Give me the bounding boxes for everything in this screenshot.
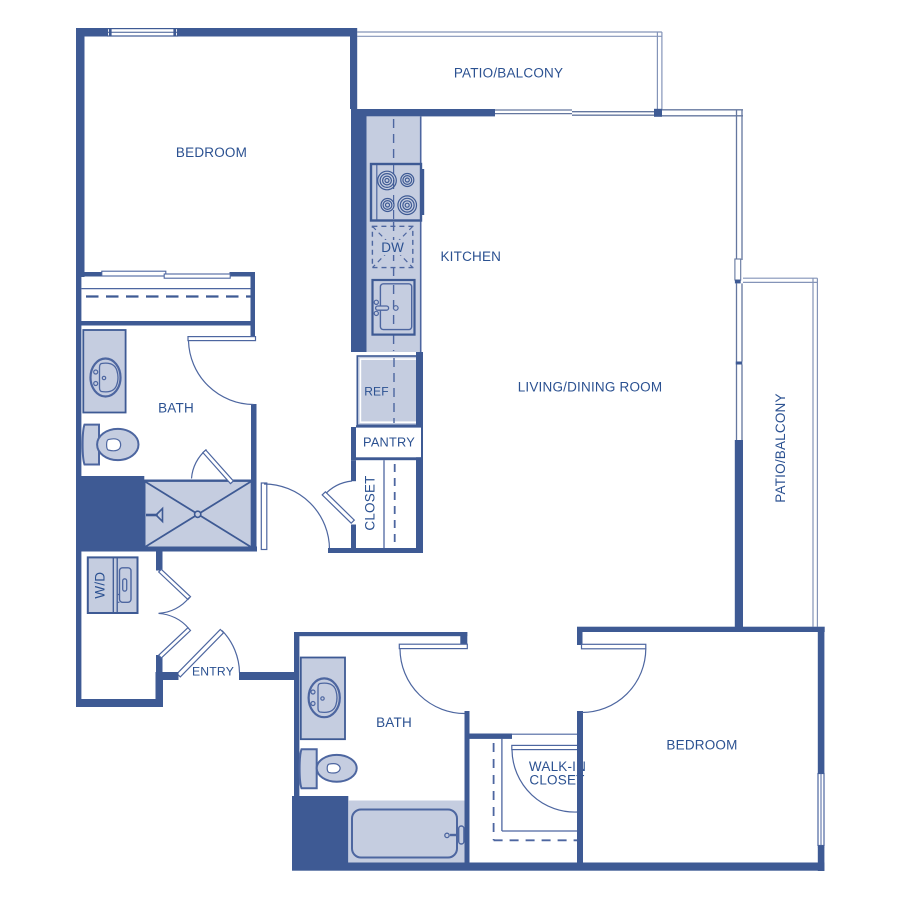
- svg-text:W/D: W/D: [93, 572, 108, 599]
- svg-text:BEDROOM: BEDROOM: [176, 145, 247, 160]
- svg-text:PATIO/BALCONY: PATIO/BALCONY: [773, 393, 788, 502]
- svg-text:CLOSET: CLOSET: [529, 772, 584, 787]
- svg-text:LIVING/DINING ROOM: LIVING/DINING ROOM: [518, 380, 663, 395]
- svg-text:BATH: BATH: [158, 400, 194, 415]
- svg-text:ENTRY: ENTRY: [192, 665, 234, 679]
- svg-text:PATIO/BALCONY: PATIO/BALCONY: [454, 66, 563, 81]
- svg-text:DW: DW: [381, 240, 404, 255]
- svg-text:BEDROOM: BEDROOM: [666, 738, 737, 753]
- svg-text:CLOSET: CLOSET: [363, 475, 378, 530]
- svg-text:KITCHEN: KITCHEN: [440, 249, 501, 264]
- svg-text:BATH: BATH: [376, 715, 412, 730]
- svg-text:REF: REF: [364, 385, 389, 399]
- svg-text:PANTRY: PANTRY: [363, 434, 415, 449]
